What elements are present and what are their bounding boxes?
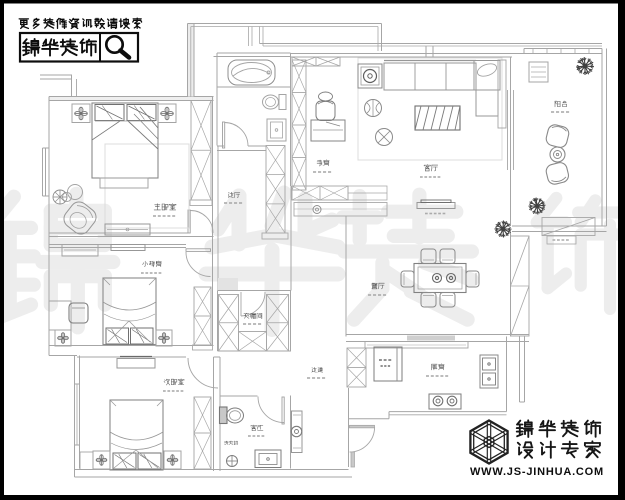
svg-text:WWW.JS-JINHUA.COM: WWW.JS-JINHUA.COM <box>470 466 604 478</box>
